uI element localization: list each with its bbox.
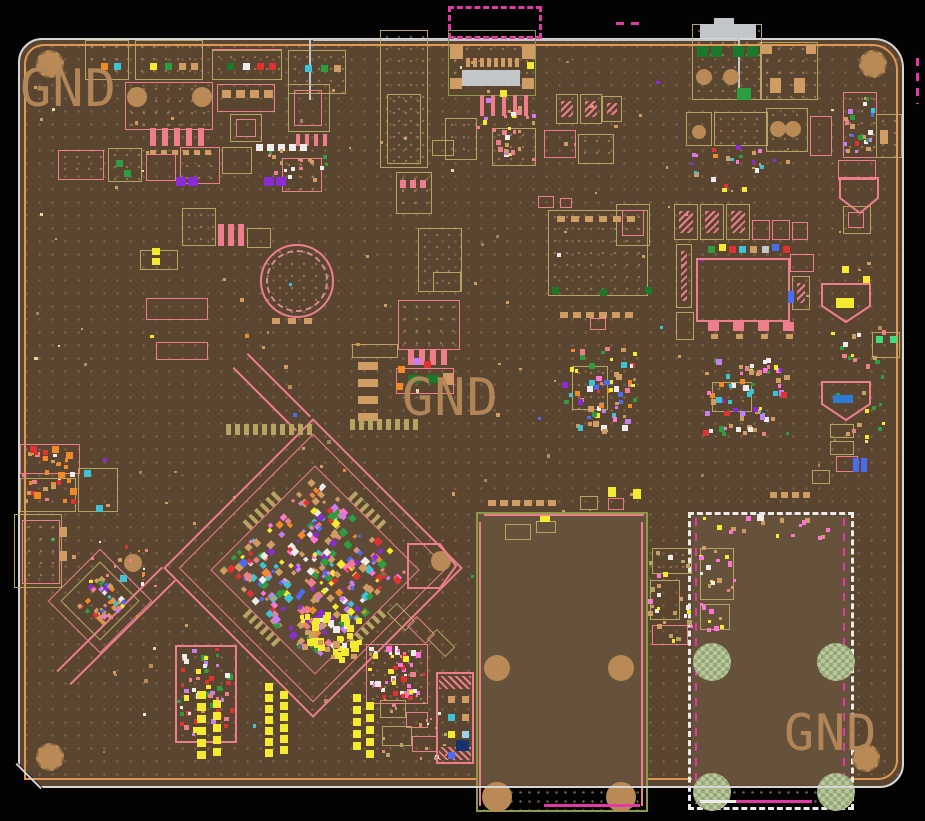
trace-bundle-yellow: [265, 705, 273, 713]
solder-pad: [450, 44, 463, 59]
pad-row: [573, 312, 581, 318]
via-dot: [882, 422, 885, 425]
via-dot: [605, 347, 609, 351]
solder-pad: [788, 291, 794, 303]
via-dot: [64, 465, 68, 469]
via-dot: [393, 666, 398, 671]
via-dot: [597, 390, 600, 393]
via-dot: [850, 115, 855, 120]
via-dot: [224, 717, 228, 721]
via-dot: [225, 673, 231, 679]
via-dot: [392, 678, 395, 681]
pad-row: [288, 318, 296, 324]
pad-row: [770, 492, 777, 498]
via-dot: [618, 392, 623, 397]
component-outline[interactable]: [146, 154, 176, 181]
component-outline[interactable]: [792, 222, 808, 240]
via-dot: [511, 112, 516, 117]
pcb-canvas[interactable]: GND GND GND: [0, 0, 925, 821]
component-outline[interactable]: [830, 424, 854, 438]
via-dot: [532, 158, 536, 162]
thermal-pad-blob: [431, 551, 451, 571]
via-dot: [802, 520, 807, 525]
via-dot: [672, 639, 675, 642]
component-outline[interactable]: [726, 204, 750, 240]
via-dot: [180, 712, 184, 716]
via-dot: [575, 369, 579, 373]
component-outline[interactable]: [578, 134, 614, 164]
via-dot: [279, 559, 284, 564]
via-dot: [776, 534, 780, 538]
via-dot: [484, 117, 487, 120]
via-dot: [882, 330, 886, 334]
component-outline[interactable]: [544, 130, 576, 158]
via-dot: [411, 650, 416, 655]
via-dot: [230, 709, 234, 713]
mounting-hole[interactable]: [36, 743, 64, 771]
via-dot: [758, 149, 762, 153]
component-outline[interactable]: [556, 94, 578, 124]
bga-ball-field-yellow: [298, 612, 362, 664]
via-dot: [750, 364, 754, 368]
via-dot: [719, 617, 722, 620]
via-dot: [862, 391, 866, 395]
via-dot: [118, 558, 122, 562]
component-outline[interactable]: [714, 112, 768, 146]
component-outline[interactable]: [602, 96, 622, 122]
pin-row: [783, 322, 794, 331]
via-dot: [619, 400, 623, 404]
via-dot: [729, 530, 733, 534]
via-dot: [143, 713, 147, 717]
via-dot: [633, 398, 637, 402]
via-dot: [486, 98, 491, 103]
component-outline[interactable]: [432, 140, 454, 156]
component-outline[interactable]: [182, 208, 216, 246]
component-outline[interactable]: [790, 254, 814, 272]
via-dot: [390, 710, 393, 713]
pad-row: [500, 500, 508, 506]
via-dot: [763, 360, 767, 364]
component-outline[interactable]: [676, 244, 692, 308]
via-dot: [502, 130, 506, 134]
pad-row: [410, 180, 416, 188]
shield-bottom-trace: [700, 800, 736, 803]
gnd-label-bottom-right: GND: [784, 708, 877, 758]
component-outline[interactable]: [792, 276, 810, 310]
via-dot: [284, 169, 288, 173]
via-dot: [323, 155, 327, 159]
via-dot: [711, 399, 716, 404]
via-dot: [386, 646, 391, 651]
via-dot: [724, 184, 728, 188]
via-dot: [759, 407, 762, 410]
via-dot: [656, 81, 660, 85]
connector-outline[interactable]: [135, 40, 203, 80]
via-dot: [102, 621, 107, 626]
via-dot: [622, 425, 628, 431]
via-dot: [308, 479, 316, 487]
component-outline[interactable]: [674, 204, 698, 240]
via-dot: [410, 672, 416, 678]
shield-bottom-trace: [736, 800, 812, 803]
via-dot: [749, 370, 754, 375]
via-dot: [650, 587, 654, 591]
solder-pad: [522, 78, 534, 89]
pad-row: [304, 318, 312, 324]
via-dot: [651, 605, 654, 608]
via-dot: [725, 555, 729, 559]
via: [772, 244, 779, 251]
via: [191, 63, 198, 70]
via-dot: [700, 572, 704, 576]
via-dot: [375, 681, 381, 687]
via-dot: [117, 606, 121, 610]
via-dot: [865, 435, 869, 439]
via-dot: [863, 102, 867, 106]
pad-row: [761, 334, 768, 339]
via-dot: [587, 386, 593, 392]
via: [863, 276, 870, 283]
via-dot: [382, 750, 385, 753]
via-dot: [183, 656, 187, 660]
component-outline[interactable]: [180, 147, 220, 184]
via-dot: [129, 559, 132, 562]
via-dot: [692, 153, 696, 157]
via-dot: [204, 669, 208, 673]
pin-strip: [271, 424, 276, 435]
via-dot: [848, 109, 853, 114]
via-dot: [691, 162, 694, 165]
component-outline[interactable]: [247, 228, 271, 248]
solder-pad: [762, 44, 772, 54]
via-dot: [271, 569, 276, 574]
component-outline[interactable]: [536, 521, 556, 533]
via-dot: [217, 686, 222, 691]
via: [305, 65, 312, 72]
via: [757, 514, 764, 521]
trace-bundle-yellow: [353, 694, 361, 702]
via-dot: [36, 312, 39, 315]
via-dot: [669, 634, 673, 638]
trace-bundle-yellow: [265, 716, 273, 724]
via-dot: [731, 586, 735, 590]
pad-row: [781, 492, 788, 498]
usb-pin-row: [487, 58, 491, 67]
via: [708, 246, 715, 253]
trace-bundle-yellow: [280, 713, 288, 721]
pin-row: [162, 128, 168, 146]
via: [58, 472, 65, 479]
component-outline[interactable]: [772, 220, 790, 240]
via: [257, 63, 264, 70]
via-dot: [402, 570, 406, 574]
via: [783, 246, 790, 253]
via-dot: [241, 587, 247, 593]
pad-row: [272, 318, 280, 324]
trace-bundle-yellow: [280, 691, 288, 699]
pin-row: [323, 134, 327, 146]
via-dot: [188, 712, 191, 715]
via-dot: [224, 724, 228, 728]
connector-pad: [456, 740, 469, 751]
via-dot: [752, 151, 756, 155]
via-dot: [400, 743, 404, 747]
via-dot: [708, 620, 711, 623]
via-dot: [727, 589, 731, 593]
component-outline[interactable]: [838, 160, 876, 180]
via-dot: [526, 116, 530, 120]
via: [150, 63, 157, 70]
connector-inner: [22, 520, 60, 584]
component-inner: [848, 212, 864, 228]
solder-pad: [522, 44, 535, 59]
via-dot: [347, 625, 354, 632]
ic-outline[interactable]: [696, 258, 790, 322]
via-dot: [492, 128, 497, 133]
via-dot: [419, 723, 423, 727]
component-outline[interactable]: [222, 147, 252, 174]
via: [124, 170, 131, 177]
component-outline[interactable]: [608, 498, 624, 510]
via-dot: [181, 684, 184, 687]
via-dot: [305, 614, 311, 620]
pad-column: [358, 362, 378, 370]
via-dot: [427, 723, 429, 725]
via-dot: [687, 620, 692, 625]
component-outline[interactable]: [352, 344, 398, 358]
via-dot: [826, 528, 830, 532]
pad-row: [236, 90, 245, 98]
via-dot: [857, 423, 862, 428]
via-dot: [753, 407, 758, 412]
component-outline[interactable]: [590, 318, 606, 330]
via-dot: [289, 631, 298, 640]
via-dot: [703, 517, 706, 520]
pin-strip: [253, 424, 258, 435]
pin-row: [733, 322, 744, 331]
via-dot: [347, 633, 353, 639]
via-dot: [244, 543, 252, 551]
component-outline[interactable]: [538, 196, 554, 208]
via-dot: [312, 621, 319, 628]
via-dot: [45, 498, 49, 502]
connector-hatch: [439, 676, 471, 689]
via-dot: [71, 499, 76, 504]
via-dot: [604, 380, 609, 385]
solder-pad: [770, 78, 781, 93]
trace-bundle-yellow: [353, 706, 361, 714]
via-dot: [705, 411, 710, 416]
via-dot: [852, 334, 857, 339]
via-dot: [24, 499, 28, 503]
pad-column: [60, 551, 67, 561]
component-outline[interactable]: [433, 272, 461, 292]
via-dot: [562, 382, 568, 388]
via-dot: [776, 378, 781, 383]
via-dot: [587, 416, 591, 420]
via-dot: [22, 473, 26, 477]
connector-pad: [462, 696, 469, 703]
component-outline[interactable]: [676, 312, 694, 340]
via: [34, 492, 41, 499]
via-dot: [423, 702, 425, 704]
via-dot: [353, 534, 357, 538]
via-dot: [730, 158, 733, 161]
pin-strip: [226, 424, 231, 435]
via: [269, 63, 276, 70]
via-dot: [748, 427, 753, 432]
component-outline[interactable]: [752, 220, 770, 240]
via-dot: [407, 684, 412, 689]
via-dot: [318, 640, 323, 645]
exposed-copper-circle: [693, 773, 731, 811]
via-dot: [614, 372, 619, 377]
via-dot: [103, 458, 106, 461]
through-hole-pad: [737, 88, 751, 100]
via-dot: [311, 638, 317, 644]
via-dot: [98, 612, 100, 614]
via-dot: [742, 187, 746, 191]
via-dot: [660, 326, 663, 329]
via-dot: [505, 135, 510, 140]
via-dot: [578, 425, 583, 430]
pad-row: [711, 334, 718, 339]
connector-pad: [448, 752, 455, 759]
via-dot: [786, 432, 789, 435]
via-dot: [578, 399, 583, 404]
via: [334, 65, 341, 72]
component-outline[interactable]: [146, 298, 208, 320]
pin-strip: [298, 424, 303, 435]
via-dot: [268, 154, 272, 158]
via-dot: [705, 372, 709, 376]
confetti-cluster: [690, 145, 770, 195]
via: [30, 446, 37, 453]
via: [552, 287, 559, 294]
usb-pin-row: [473, 58, 477, 67]
via-dot: [602, 410, 606, 414]
confetti-cluster: [177, 647, 235, 739]
pad-row: [512, 500, 520, 506]
component-outline[interactable]: [810, 116, 832, 156]
thermal-pad-blob: [484, 655, 510, 681]
via-dot: [716, 559, 719, 562]
exposed-copper-circle: [693, 643, 731, 681]
pad-row: [420, 180, 426, 188]
via: [719, 244, 726, 251]
via: [321, 65, 328, 72]
via-dot: [694, 171, 697, 174]
via-dot: [858, 135, 863, 140]
via-dot: [842, 354, 846, 358]
gnd-label-center: GND: [402, 372, 499, 424]
via-dot: [296, 491, 302, 497]
component-outline[interactable]: [58, 150, 104, 180]
component-outline[interactable]: [700, 204, 724, 240]
component-outline[interactable]: [580, 496, 598, 510]
via-dot: [145, 549, 148, 552]
trace-bundle-yellow: [280, 746, 288, 754]
via-dot: [846, 149, 851, 154]
component-outline[interactable]: [580, 94, 602, 124]
component-outline[interactable]: [396, 172, 432, 214]
via-dot: [357, 550, 363, 556]
via-dot: [599, 403, 604, 408]
via-dot: [226, 681, 231, 686]
via-dot: [518, 130, 521, 133]
via-dot: [580, 355, 585, 360]
via-dot: [518, 147, 522, 151]
pad-row: [736, 334, 743, 339]
via-dot: [266, 541, 275, 550]
via-dot: [714, 550, 717, 553]
via-dot: [252, 538, 261, 547]
usb-pin-row: [466, 58, 470, 67]
through-hole-pad: [692, 125, 706, 139]
component-outline[interactable]: [830, 441, 854, 455]
via-dot: [736, 145, 740, 149]
via-dot: [657, 574, 661, 578]
via-dot: [851, 354, 855, 358]
battery-holder-inner: [266, 250, 328, 312]
via-dot: [532, 121, 536, 125]
via-dot: [761, 521, 765, 525]
trace-bundle-yellow: [197, 739, 206, 747]
via-dot: [739, 365, 743, 369]
solder-pad: [806, 44, 816, 54]
via-dot: [712, 148, 716, 152]
via-dot: [504, 149, 507, 152]
via-dot: [106, 574, 109, 577]
via-dot: [716, 359, 722, 365]
via-dot: [51, 460, 54, 463]
mounting-hole[interactable]: [859, 50, 887, 78]
pad-row: [571, 216, 579, 222]
component-outline[interactable]: [505, 524, 531, 540]
via-dot: [868, 138, 872, 142]
via-dot: [184, 689, 189, 694]
pin-row: [441, 350, 447, 365]
via-dot: [310, 586, 315, 591]
pad-row: [792, 492, 799, 498]
via-dot: [686, 564, 690, 568]
via-dot: [348, 515, 356, 523]
pad-row: [488, 500, 496, 506]
via-dot: [657, 593, 661, 597]
pad-row: [585, 216, 593, 222]
solder-pad: [450, 78, 462, 89]
gnd-label-top-left: GND: [20, 63, 117, 115]
component-outline[interactable]: [156, 342, 208, 360]
component-outline[interactable]: [217, 84, 275, 112]
via-dot: [317, 491, 325, 499]
via-dot: [280, 149, 284, 153]
via-dot: [657, 584, 661, 588]
component-outline[interactable]: [812, 470, 830, 484]
pin-strip: [350, 419, 355, 430]
via-dot: [840, 346, 844, 350]
through-hole-pad: [697, 46, 708, 57]
component-outline[interactable]: [398, 300, 460, 350]
via-dot: [589, 363, 595, 369]
via-dot: [781, 392, 787, 398]
solder-pad: [833, 395, 853, 403]
pin-row: [314, 134, 318, 146]
via-dot: [302, 644, 308, 650]
solder-pad: [633, 489, 641, 499]
via-dot: [221, 698, 224, 701]
